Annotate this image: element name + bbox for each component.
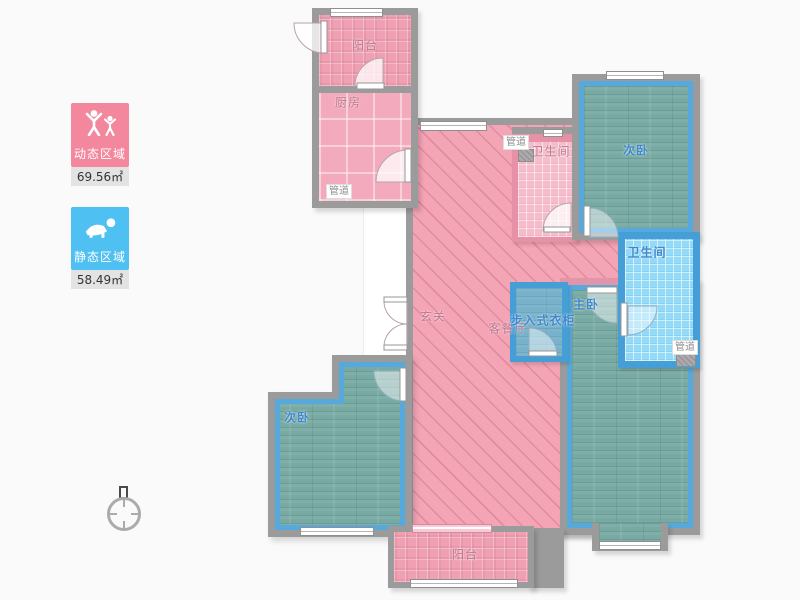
- window-balcony-bottom: [410, 579, 518, 588]
- duct-text: 管道: [506, 137, 526, 148]
- duct-shaft-bathroom-pink: [518, 149, 534, 162]
- legend-static-zone: 静态区域: [71, 207, 129, 270]
- legend-dynamic-zone: 动态区域: [71, 103, 129, 167]
- duct-label-bathroom-blue: 管道: [672, 340, 698, 355]
- duct-text: 管道: [675, 342, 695, 353]
- people-icon: [81, 109, 119, 139]
- sliding-door[interactable]: [412, 524, 492, 533]
- walk-in-closet-block: [510, 282, 568, 362]
- kitchen-balcony-block: [312, 8, 418, 208]
- window-master-bay: [599, 541, 661, 550]
- legend-static-label: 静态区域: [74, 248, 126, 265]
- window-bedroom-top-right: [606, 71, 664, 80]
- balcony-top-floor[interactable]: [319, 15, 411, 86]
- bedroom-bottom-left-block: [268, 355, 412, 537]
- balcony-bottom-floor[interactable]: [394, 532, 528, 582]
- window-living-top: [420, 121, 487, 131]
- legend-dynamic-area: 69.56㎡: [71, 167, 129, 186]
- static-area-value: 58.49㎡: [77, 271, 123, 288]
- entry-void: [363, 202, 408, 364]
- window-bathroom-pink: [543, 129, 563, 137]
- floor-plan: 动态区域 69.56㎡ 静态区域 58.49㎡: [0, 0, 800, 600]
- duct-label-bathroom-pink: 管道: [503, 135, 529, 150]
- window-bedroom-bottom-left: [300, 527, 374, 536]
- sleep-icon: [81, 215, 119, 242]
- bedroom-top-right-block: [572, 74, 700, 240]
- bedroom-top-right-floor[interactable]: [584, 86, 688, 228]
- duct-text: 管道: [329, 186, 349, 197]
- legend-static-area: 58.49㎡: [71, 270, 129, 289]
- corridor-wall: [560, 278, 618, 285]
- duct-label-kitchen: 管道: [326, 184, 352, 199]
- dynamic-area-value: 69.56㎡: [77, 168, 123, 185]
- walk-in-closet-floor[interactable]: [516, 288, 562, 356]
- legend-dynamic-label: 动态区域: [74, 145, 126, 162]
- window-balcony-top: [330, 8, 383, 17]
